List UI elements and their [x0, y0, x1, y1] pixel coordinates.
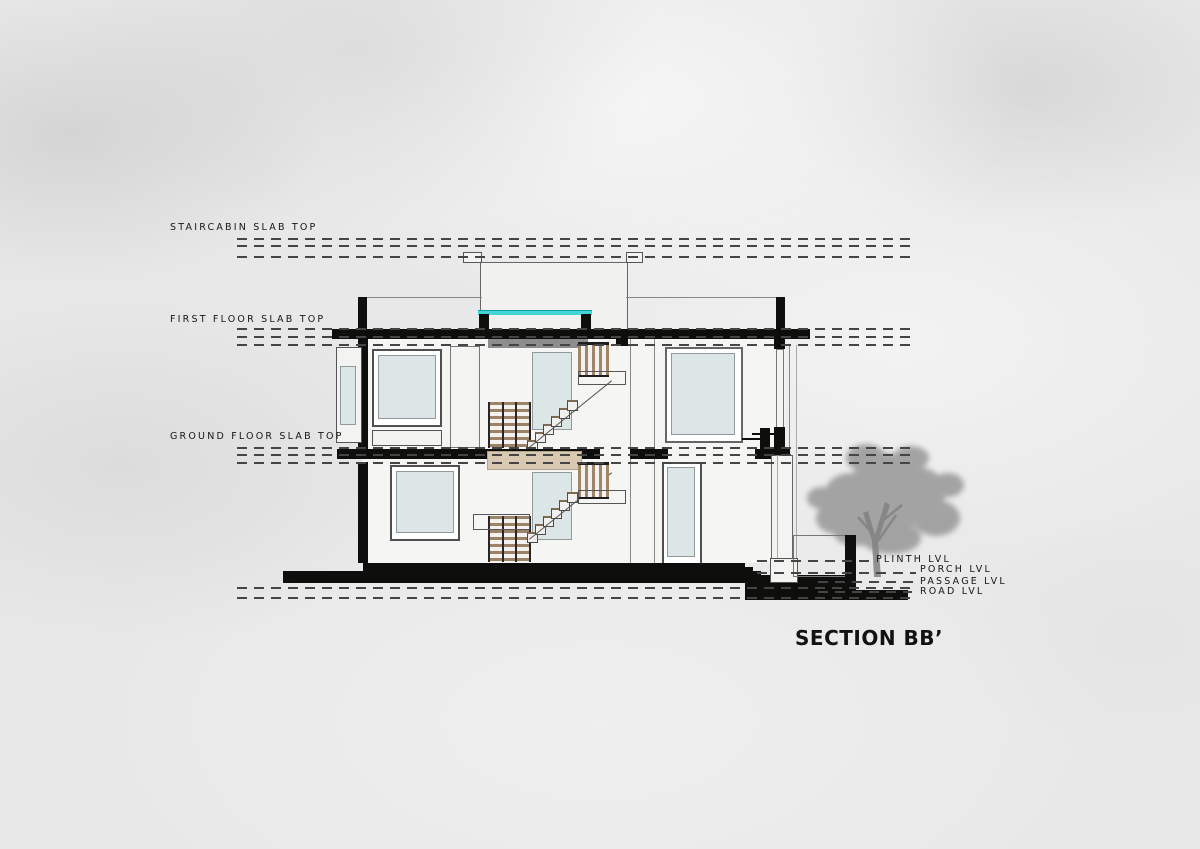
compound-wall: [845, 535, 856, 593]
ff-stair-treads: [488, 402, 531, 448]
gf-glass-door-glass: [667, 467, 695, 557]
level-label-staircabin: STAIRCABIN SLAB TOP: [170, 222, 318, 233]
level-label-ground-floor: GROUND FLOOR SLAB TOP: [170, 431, 344, 442]
tread-mullion: [502, 402, 504, 448]
section-title: SECTION BB’: [795, 626, 943, 650]
gf-left-window-glass: [396, 471, 454, 533]
leader-passage: [818, 581, 916, 583]
skylight-glass: [478, 310, 592, 315]
ff-right-window-glass: [671, 353, 735, 435]
porch-wall-beyond-line: [796, 345, 797, 560]
level-line-staircabin: [237, 256, 910, 258]
balcony-tick: [742, 438, 760, 440]
level-line-ground-floor: [237, 462, 910, 464]
porch-parapet-outline: [793, 535, 847, 577]
staircabin-box: [480, 262, 628, 332]
section-drawing: STAIRCABIN SLAB TOP FIRST FLOOR SLAB TOP…: [0, 0, 1200, 849]
ff-bay-window-glass: [340, 366, 356, 425]
level-line-road: [237, 587, 910, 589]
plinth-main: [363, 563, 745, 583]
level-line-first-floor: [237, 344, 910, 346]
parapet-left: [358, 297, 367, 330]
leader-plinth: [757, 560, 873, 562]
ff-right-wall-bottom: [774, 427, 785, 449]
leader-porch: [757, 572, 916, 574]
parapet-top-line-right: [626, 297, 778, 298]
plinth-left-apron: [283, 571, 365, 583]
ff-right-wall-mid: [776, 349, 784, 429]
gf-handrail-box: [473, 514, 530, 530]
gf-left-wall: [358, 462, 368, 563]
leader-road: [818, 591, 912, 593]
level-line-road: [237, 597, 910, 599]
level-line-staircabin: [237, 245, 910, 247]
level-line-first-floor: [237, 328, 910, 330]
ff-landing-rail-box: [578, 371, 626, 385]
parapet-right: [776, 297, 785, 330]
porch-column: [771, 455, 793, 561]
ff-pilaster: [450, 346, 480, 448]
level-line-ground-floor: [237, 454, 910, 456]
ff-left-window-glass: [378, 355, 436, 419]
ff-left-window-sill: [372, 430, 442, 446]
level-line-first-floor: [237, 336, 910, 338]
balcony-beam-stub: [760, 428, 770, 449]
plinth-step: [753, 571, 761, 600]
parapet-top-line-left: [364, 297, 482, 298]
level-line-ground-floor: [237, 447, 910, 449]
gf-landing-rail-box: [578, 490, 626, 504]
level-label-road: ROAD LVL: [920, 586, 984, 597]
level-label-porch: PORCH LVL: [920, 564, 992, 575]
tread-mullion: [515, 402, 517, 448]
level-line-staircabin: [237, 238, 910, 240]
level-label-first-floor: FIRST FLOOR SLAB TOP: [170, 314, 325, 325]
porch-column-line: [777, 455, 778, 559]
plinth-step: [745, 567, 753, 600]
